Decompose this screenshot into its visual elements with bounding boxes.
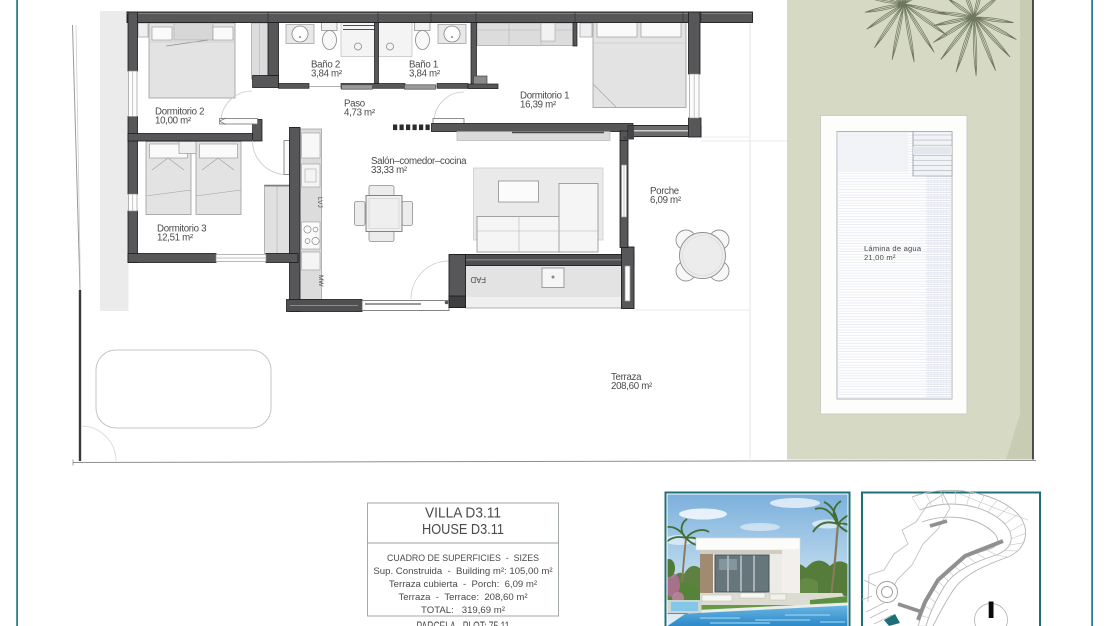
svg-text:Sup. Construida - Building m: Sup. Construida - Building m²: 105,00 m² xyxy=(373,566,553,577)
svg-text:TOTAL: 319,69 m²: TOTAL: 319,69 m² xyxy=(421,605,506,616)
svg-text:Lámina de agua: Lámina de agua xyxy=(864,244,922,253)
svg-text:Terraza - Terrace: 208,60 m: Terraza - Terrace: 208,60 m² xyxy=(398,592,528,603)
svg-text:12,51 m²: 12,51 m² xyxy=(157,233,194,244)
svg-text:MW: MW xyxy=(317,275,324,287)
svg-text:Terraza cubierta - Porch: 6: Terraza cubierta - Porch: 6,09 m² xyxy=(389,579,538,590)
svg-text:3,84 m²: 3,84 m² xyxy=(311,69,343,80)
svg-text:6,09 m²: 6,09 m² xyxy=(650,195,682,206)
svg-text:4,73 m²: 4,73 m² xyxy=(344,108,376,119)
svg-text:16,39 m²: 16,39 m² xyxy=(520,100,557,111)
svg-text:33,33 m²: 33,33 m² xyxy=(371,165,408,176)
svg-text:VILLA D3.11: VILLA D3.11 xyxy=(425,505,501,522)
svg-text:208,60 m²: 208,60 m² xyxy=(611,381,653,392)
svg-text:3,84 m²: 3,84 m² xyxy=(409,69,441,80)
svg-text:10,00 m²: 10,00 m² xyxy=(155,116,192,127)
svg-text:LVJ: LVJ xyxy=(316,197,323,208)
svg-text:CUADRO DE SUPERFICIES - SIZE: CUADRO DE SUPERFICIES - SIZES xyxy=(387,553,539,564)
svg-text:FAD: FAD xyxy=(470,275,486,284)
svg-text:HOUSE D3.11: HOUSE D3.11 xyxy=(422,521,504,538)
svg-text:PARCELA - PLOT: 75.11: PARCELA - PLOT: 75.11 xyxy=(417,619,510,626)
svg-text:21,00 m²: 21,00 m² xyxy=(864,253,896,262)
